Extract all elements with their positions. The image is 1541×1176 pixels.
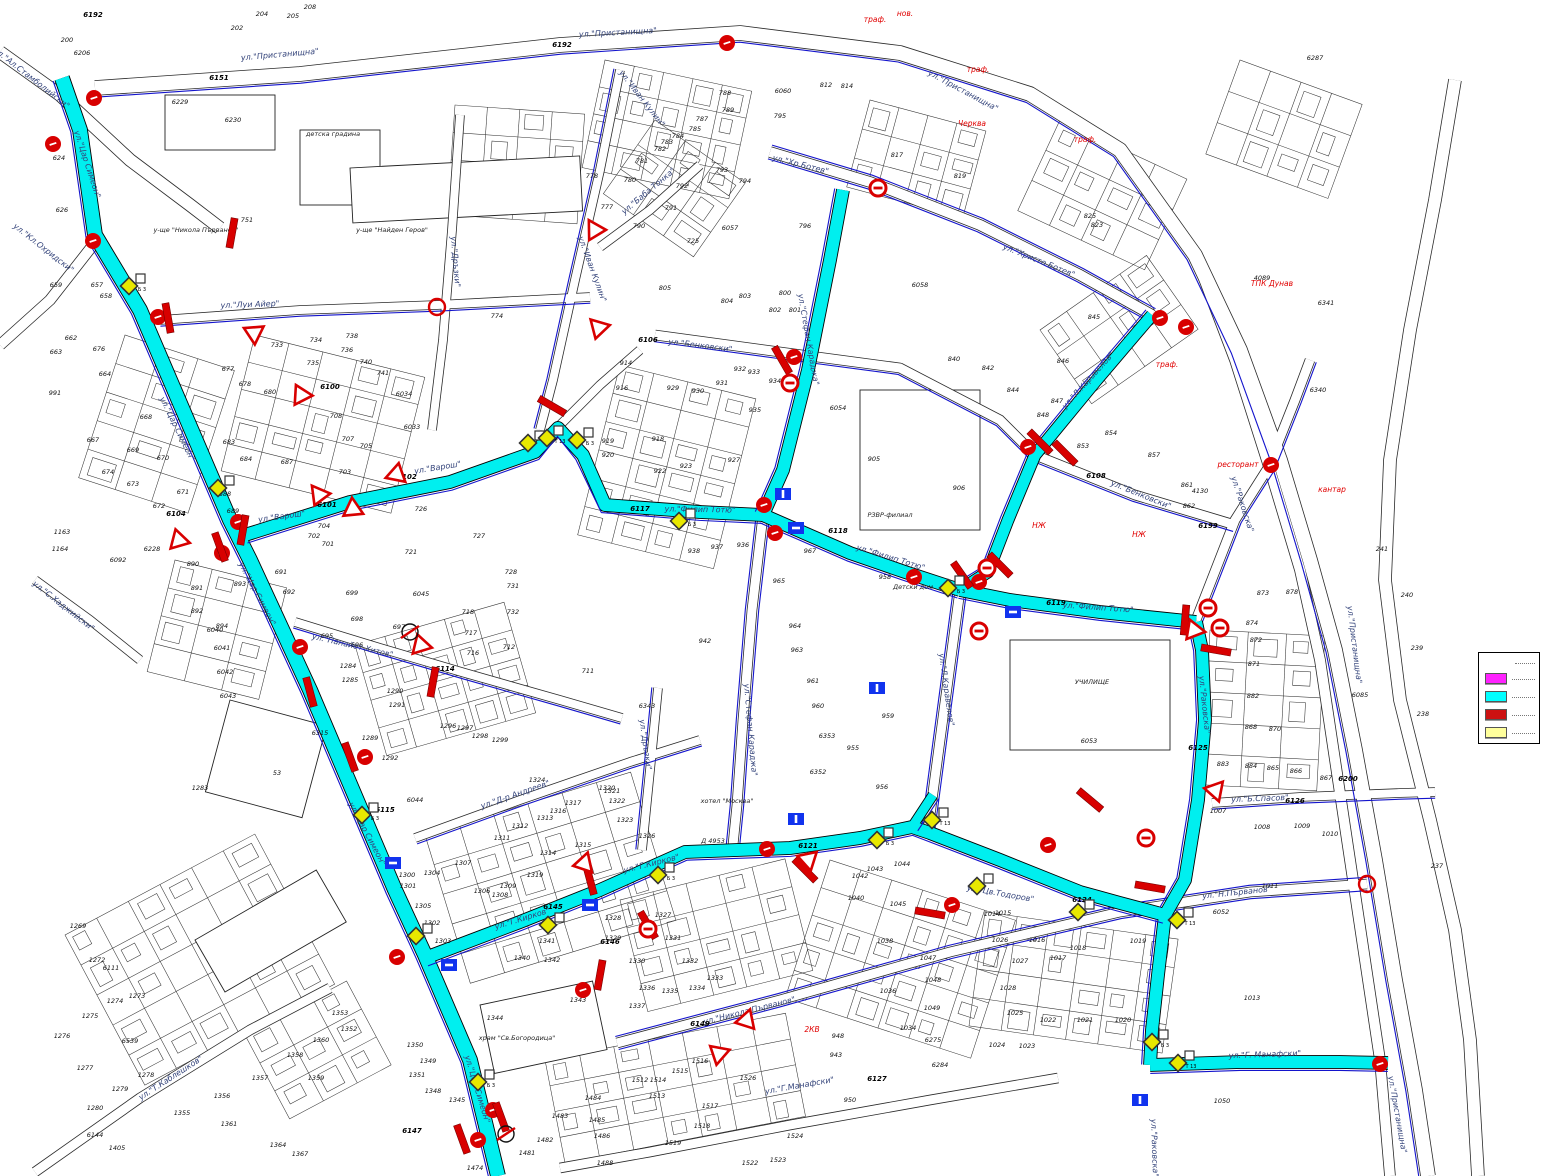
road-surface [415,740,700,838]
parcel-number: 942 [699,637,711,645]
parcel-number: 1289 [362,734,379,742]
parcel-number: 782 [654,145,666,153]
parcel-number: 721 [405,548,417,556]
parcel-number: 1275 [82,1012,99,1020]
legend-item-label [1512,732,1535,734]
parcel-number: 1334 [689,984,706,992]
parcel-number: 1038 [877,937,894,945]
parcel-number: 1045 [890,900,907,908]
parcel-number: 784 [672,132,684,140]
blue-box-marker-icon [385,857,401,869]
parcel-number: 825 [1084,212,1096,220]
no-entry-marker-icon [1200,600,1216,616]
parcel-number: 1298 [472,732,489,740]
parcel-number: 1273 [129,992,146,1000]
no-entry-marker-icon [640,921,656,937]
parcel-number: 1278 [138,1071,155,1079]
valve-bar-icon [1135,881,1166,893]
parcel-number: 967 [804,547,817,555]
parcel-number: 670 [157,454,169,462]
no-entry-marker-icon [870,180,886,196]
no-entry-marker-icon [1138,830,1154,846]
parcel-number: 1048 [925,976,942,984]
valve-bar-icon [915,907,946,919]
parcel-number: 725 [687,237,699,245]
street-name-label: ул."С.Хаджийски" [30,579,96,633]
parcel-number: 871 [1248,660,1260,668]
parcel-number: 857 [1148,451,1161,459]
parcel-number: 1308 [492,891,509,899]
parcel-number: 1312 [512,822,529,830]
parcel-number: 950 [844,1096,856,1104]
parcel-number: 794 [739,177,751,185]
parcel-number: 1280 [87,1104,104,1112]
blue-box-marker-icon [775,488,791,500]
parcel-number: 728 [505,568,517,576]
parcel-number: 6057 [722,224,739,232]
parcel-number: 711 [582,667,594,675]
map-labels: 2006206202204205208622962307516246266596… [0,3,1444,1176]
parcel-number: 1359 [308,1074,325,1082]
road-surface [295,622,622,718]
blue-box-marker-icon [1005,606,1021,618]
parcel-number: 202 [231,24,243,32]
parcel-number: 740 [360,358,372,366]
street-name-label: ул."Пристанищна" [239,47,319,63]
parcel-number: 1044 [894,860,911,868]
parcel-number: 238 [1417,710,1429,718]
parcel-number: 1015 [995,909,1012,917]
marker-code-label: Б 3 [688,522,696,528]
parcel-number: 965 [773,577,785,585]
parcel-number: 935 [749,406,761,414]
parcel-number: 678 [239,380,251,388]
parcel-number: 1326 [639,832,656,840]
parcel-number: 673 [127,480,139,488]
parcel-number: 1405 [109,1144,126,1152]
parcel-number: 6092 [110,556,127,564]
parcel-number: 882 [1247,692,1259,700]
hydrant-marker-icon [767,525,783,541]
parcel-number: 662 [65,334,77,342]
map-markers: Б 3Б 3Б 3Т 13Б 3Б 3Б 3Б 3Б 3Т 13Т 13Б 3Т… [45,35,1388,1154]
parcel-number: 1481 [519,1149,536,1157]
parcel-number: 868 [1245,723,1257,731]
parcel-number: 6042 [217,668,234,676]
parcel-number: 1307 [455,859,472,867]
parcel-number: 930 [692,387,704,395]
parcel-block [245,981,391,1119]
parcel-number: 1036 [880,987,897,995]
parcel-number: 1515 [672,1067,689,1075]
parcel-number: 674 [102,468,114,476]
parcel-number: 1043 [867,865,884,873]
no-entry-marker-icon [971,623,987,639]
parcel-number: 1309 [500,882,517,890]
parcel-number: 804 [721,297,733,305]
parcel-number: 846 [1057,357,1069,365]
parcel-number: 1512 [632,1076,649,1084]
water-main-line [53,81,489,1176]
parcel-number: 795 [774,112,786,120]
parcel-number: 1327 [655,911,672,919]
parcel-number: 1344 [487,1014,504,1022]
parcel-number: 1358 [287,1051,304,1059]
parcel-number: 788 [719,89,731,97]
street-name-label: ул."Иван Кулин" [617,68,667,129]
parcel-number: 1522 [742,1159,759,1167]
blue-box-marker-icon [582,899,598,911]
hydrant-marker-icon [906,569,922,585]
parcel-number: 793 [716,166,728,174]
parcel-number: 1272 [89,956,106,964]
parcel-number: 1321 [604,787,621,795]
parcel-number: 6052 [1213,908,1230,916]
parcel-number: 6340 [1310,386,1327,394]
no-entry-marker-icon [782,375,798,391]
street-ref-number: 6147 [402,1127,422,1135]
parcel-number: 922 [654,467,666,475]
street-ref-number: 6121 [798,842,818,850]
parcel-number: 1486 [594,1132,611,1140]
parcel-number: 1163 [54,528,71,536]
street-ref-number: 6200 [1338,775,1358,783]
parcel-number: 905 [868,455,880,463]
marker-code-label: Б 3 [957,589,965,595]
parcel-number: 1291 [389,701,406,709]
parcel-number: 873 [1257,589,1269,597]
parcel-number: 1306 [474,887,491,895]
parcel-number: 6060 [775,87,792,95]
parcel-number: 1355 [174,1109,191,1117]
hydrant-marker-icon [470,1132,486,1148]
parcel-number: 1269 [70,922,87,930]
parcel-number: 735 [307,359,319,367]
legend-swatch-icon [1485,727,1507,738]
parcel-number: 1341 [539,937,556,945]
parcel-number: 842 [982,364,994,372]
parcel-number: 1517 [702,1102,719,1110]
marker-code-label: Т 13 [938,821,950,827]
parcel-number: 929 [667,384,679,392]
parcel-number: 1007 [1210,807,1227,815]
parcel-number: 862 [1183,502,1195,510]
parcel-number: 1316 [550,807,567,815]
parcel-number: 1524 [787,1132,804,1140]
parcel-number: 1352 [341,1025,358,1033]
parcel-number: 844 [1007,386,1019,394]
parcel-number: 664 [99,370,111,378]
street-name-label: ул."Г.Манафски" [763,1075,834,1096]
parcel-number: 1361 [221,1120,238,1128]
parcel-number: 1301 [400,882,417,890]
parcel-number: 1049 [924,1004,941,1012]
parcel-number: 1017 [1050,954,1067,962]
parcel-number: 1360 [313,1036,330,1044]
blue-box-marker-icon [441,959,457,971]
parcel-number: 803 [739,292,751,300]
parcel-number: 884 [1245,762,1257,770]
parcel-number: 1518 [694,1122,711,1130]
triangle-marker-icon [589,220,606,240]
marker-code-label: Б 3 [138,287,146,293]
street-ref-number: 6126 [1285,797,1305,805]
parcel-number: 938 [688,547,700,555]
parcel-number: 919 [602,437,614,445]
parcel-number: 703 [339,468,351,476]
building-outline [1010,640,1170,750]
landmark-label: Д 4953 [700,837,725,845]
parcel-block [1206,60,1362,198]
parcel-number: 1317 [565,799,582,807]
parcel-number: 1020 [1115,1016,1132,1024]
parcel-number: 883 [1217,760,1229,768]
parcel-number: 805 [659,284,671,292]
parcel-number: 716 [467,649,479,657]
parcel-number: 1353 [332,1009,349,1017]
parcel-number: 6352 [810,768,827,776]
street-name-label: ул."Христо Ботев" [1001,242,1076,279]
parcel-number: 708 [330,412,342,420]
hydrant-marker-icon [1020,439,1036,455]
parcel-number: 1040 [848,894,865,902]
parcel-number: 956 [876,783,888,791]
marker-code-label: Б 3 [586,441,594,447]
parcel-number: 1021 [1077,1016,1094,1024]
parcel-number: 1350 [407,1041,424,1049]
parcel-number: 927 [728,456,741,464]
parcel-number: 1285 [342,676,359,684]
parcel-number: 732 [507,608,519,616]
parcel-number: 707 [342,435,355,443]
parcel-number: 698 [351,615,363,623]
street-ref-number: 6146 [600,938,620,946]
parcel-number: 738 [346,332,358,340]
hydrant-marker-icon [292,639,308,655]
parcel-number: 1356 [214,1092,231,1100]
parcel-number: 802 [769,306,781,314]
cadastral-map-viewport[interactable]: 2006206202204205208622962307516246266596… [0,0,1541,1176]
parcel-number: 1367 [292,1150,309,1158]
parcel-number: 663 [50,348,62,356]
parcel-number: 874 [1246,619,1258,627]
parcel-number: 241 [1376,545,1388,553]
street-ref-number: 6100 [320,383,340,391]
street-ref-number: 6117 [630,505,650,513]
parcel-number: 937 [711,543,724,551]
red-annotation-label: ресторант [1216,460,1259,469]
hydrant-marker-icon [45,136,61,152]
marker-code-label: Т 13 [1183,921,1195,927]
parcel-number: 6353 [819,732,836,740]
parcel-number: 1482 [537,1136,554,1144]
parcel-number: 741 [377,369,389,377]
landmark-label: храм "Св.Богородица" [478,1034,555,1042]
parcel-number: 1019 [1130,937,1147,945]
parcel-number: 624 [53,154,65,162]
parcel-block [578,365,756,569]
parcel-number: 6034 [396,390,413,398]
parcel-number: 958 [879,573,891,581]
parcel-number: 878 [1286,588,1298,596]
parcel-number: 1025 [1007,1009,1024,1017]
parcel-number: 734 [310,336,322,344]
parcel-number: 819 [954,172,966,180]
parcel-number: 1297 [457,724,474,732]
blue-box-marker-icon [788,813,804,825]
parcel-number: 1024 [989,1041,1006,1049]
parcel-number: 1313 [537,814,554,822]
parcel-number: 1274 [107,997,124,1005]
parcel-number: 791 [665,204,677,212]
parcel-number: 867 [1320,774,1333,782]
legend-item-label [1512,678,1535,680]
parcel-number: 1164 [52,545,69,553]
parcel-number: 1027 [1012,957,1029,965]
parcel-number: 1013 [1244,994,1261,1002]
red-annotation-label: НЖ [1132,530,1147,539]
parcel-number: 6033 [404,423,421,431]
street-ref-number: 6118 [828,527,848,535]
parcel-number: 960 [812,702,824,710]
red-annotation-label: 2КВ [804,1025,819,1034]
parcel-number: 677 [222,365,235,373]
parcel-number: 240 [1401,591,1413,599]
parcel-number: 1340 [514,954,531,962]
parcel-number: 918 [652,435,664,443]
hydrant-marker-icon [1040,837,1056,853]
parcel-number: 4130 [1192,487,1209,495]
parcel-number: 6053 [1081,737,1098,745]
parcel-number: 733 [271,341,283,349]
parcel-number: 705 [360,442,372,450]
parcel-number: 1523 [770,1156,787,1164]
parcel-number: 6045 [413,590,430,598]
hydrant-marker-icon [756,497,772,513]
legend-item-label [1512,696,1535,698]
parcel-block [1040,255,1198,403]
red-annotation-label: ТПК Дунав [1251,279,1293,288]
hydrant-marker-icon [575,982,591,998]
parcel-number: 1315 [575,841,592,849]
parcel-number: 840 [948,355,960,363]
parcel-number: 959 [882,712,894,720]
parcel-number: 1304 [424,869,441,877]
red-annotation-label: кантар [1318,485,1346,494]
parcel-number: 1290 [387,687,404,695]
parcel-number: 692 [283,588,295,596]
hydrant-marker-icon [759,841,775,857]
parcel-number: 933 [748,368,760,376]
parcel-number: 787 [696,115,709,123]
parcel-number: 6085 [1352,691,1369,699]
road-surface [733,515,763,845]
parcel-number: 689 [227,507,239,515]
hydrant-marker-icon [786,349,802,365]
parcel-number: 751 [241,216,253,224]
parcel-number: 785 [689,125,701,133]
parcel-number: 777 [601,203,614,211]
parcel-number: 676 [93,345,105,353]
marker-code-label: Б 3 [886,841,894,847]
parcel-number: 906 [953,484,965,492]
legend-item-label [1512,714,1535,716]
parcel-number: 6058 [912,281,929,289]
parcel-number: 1296 [440,722,457,730]
parcel-number: 1305 [415,902,432,910]
parcel-number: 1342 [544,956,561,964]
parcel-number: 6284 [932,1061,949,1069]
parcel-number: 727 [473,532,486,540]
street-ref-number: 6149 [690,1020,710,1028]
parcel-number: 731 [507,582,519,590]
parcel-number: 955 [847,744,859,752]
parcel-number: 872 [1250,636,1262,644]
parcel-number: 205 [287,12,299,20]
parcel-number: 1283 [192,784,209,792]
parcel-number: 991 [49,389,61,397]
triangle-marker-icon [166,527,190,549]
road-surface [928,590,960,830]
parcel-number: 704 [318,522,330,530]
parcel-number: 1364 [270,1141,287,1149]
parcel-number: 1299 [492,736,509,744]
blue-box-marker-icon [1132,1094,1148,1106]
parcel-number: 1336 [639,984,656,992]
parcel-number: 1484 [585,1094,602,1102]
parcel-number: 6341 [1318,299,1335,307]
parcel-number: 1277 [77,1064,94,1072]
street-name-label: ул."Кл.Охридски" [11,221,76,274]
hydrant-marker-icon [85,233,101,249]
landmark-label: у-ще "Найден Геров" [355,226,428,234]
triangle-marker-icon [586,320,610,342]
street-ref-number: 6108 [1086,472,1106,480]
parcel-number: 6275 [925,1036,942,1044]
triangle-marker-icon [386,461,409,482]
parcel-number: 6044 [407,796,424,804]
landmark-label: УЧИЛИЩЕ [1075,678,1110,686]
parcel-number: 736 [341,346,353,354]
parcel-number: 6111 [103,964,120,972]
parcel-number: 1050 [1214,1097,1231,1105]
parcel-number: 6229 [172,98,189,106]
parcel-number: 1026 [992,936,1009,944]
parcel-number: 669 [127,446,139,454]
street-name-label: ул."Бенковски" [1109,478,1173,511]
street-ref-number: 6127 [867,1075,887,1083]
street-ref-number: 6192 [83,11,103,19]
no-entry-marker-icon [979,560,995,576]
parcel-number: 702 [308,532,320,540]
parcel-number: 920 [602,451,614,459]
parcel-number: 6230 [225,116,242,124]
legend-swatch-icon [1485,709,1507,720]
parcel-number: 1526 [740,1074,757,1082]
parcel-number: 1328 [605,914,622,922]
parcel-number: 1519 [665,1139,682,1147]
map-canvas[interactable]: 2006206202204205208622962307516246266596… [0,0,1541,1176]
triangle-marker-icon [287,380,313,404]
parcel-number: 870 [1269,725,1281,733]
red-annotation-label: НЖ [1032,521,1047,530]
red-annotation-label: траф. [967,65,990,74]
red-annotation-label: нов. [897,9,913,18]
parcel-number: 781 [636,157,648,165]
parcel-number: 672 [153,502,165,510]
parcel-number: 6043 [220,692,237,700]
hydrant-marker-icon [1178,319,1194,335]
